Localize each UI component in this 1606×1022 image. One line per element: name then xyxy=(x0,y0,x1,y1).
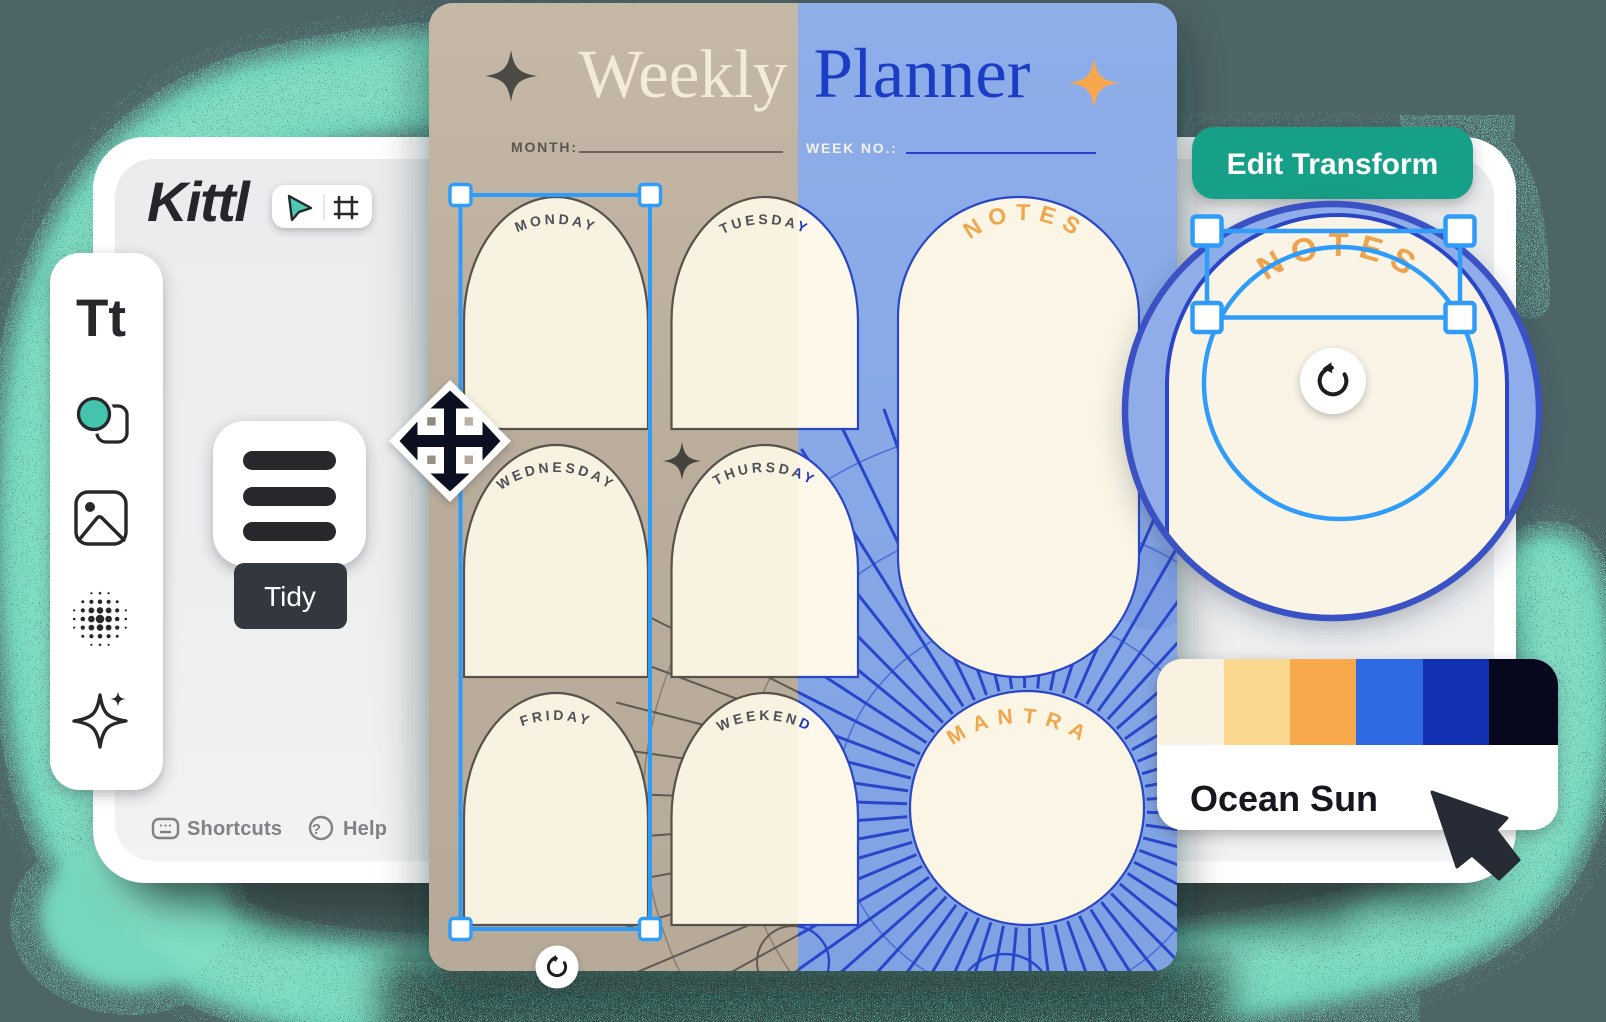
svg-text:Tidy: Tidy xyxy=(264,581,316,612)
svg-text:WEEK NO.:: WEEK NO.: xyxy=(806,140,898,156)
svg-text:Kittl: Kittl xyxy=(147,170,251,233)
svg-text:MONTH:: MONTH: xyxy=(511,139,578,155)
svg-text:Ocean Sun: Ocean Sun xyxy=(1190,778,1378,819)
svg-text:Help: Help xyxy=(343,818,387,840)
svg-text:?: ? xyxy=(312,821,321,838)
svg-text:Tt: Tt xyxy=(76,289,126,348)
svg-text:Planner: Planner xyxy=(814,35,1031,113)
svg-text:Weekly: Weekly xyxy=(578,36,788,112)
svg-text:Edit Transform: Edit Transform xyxy=(1227,148,1439,181)
svg-text:Shortcuts: Shortcuts xyxy=(187,818,282,840)
